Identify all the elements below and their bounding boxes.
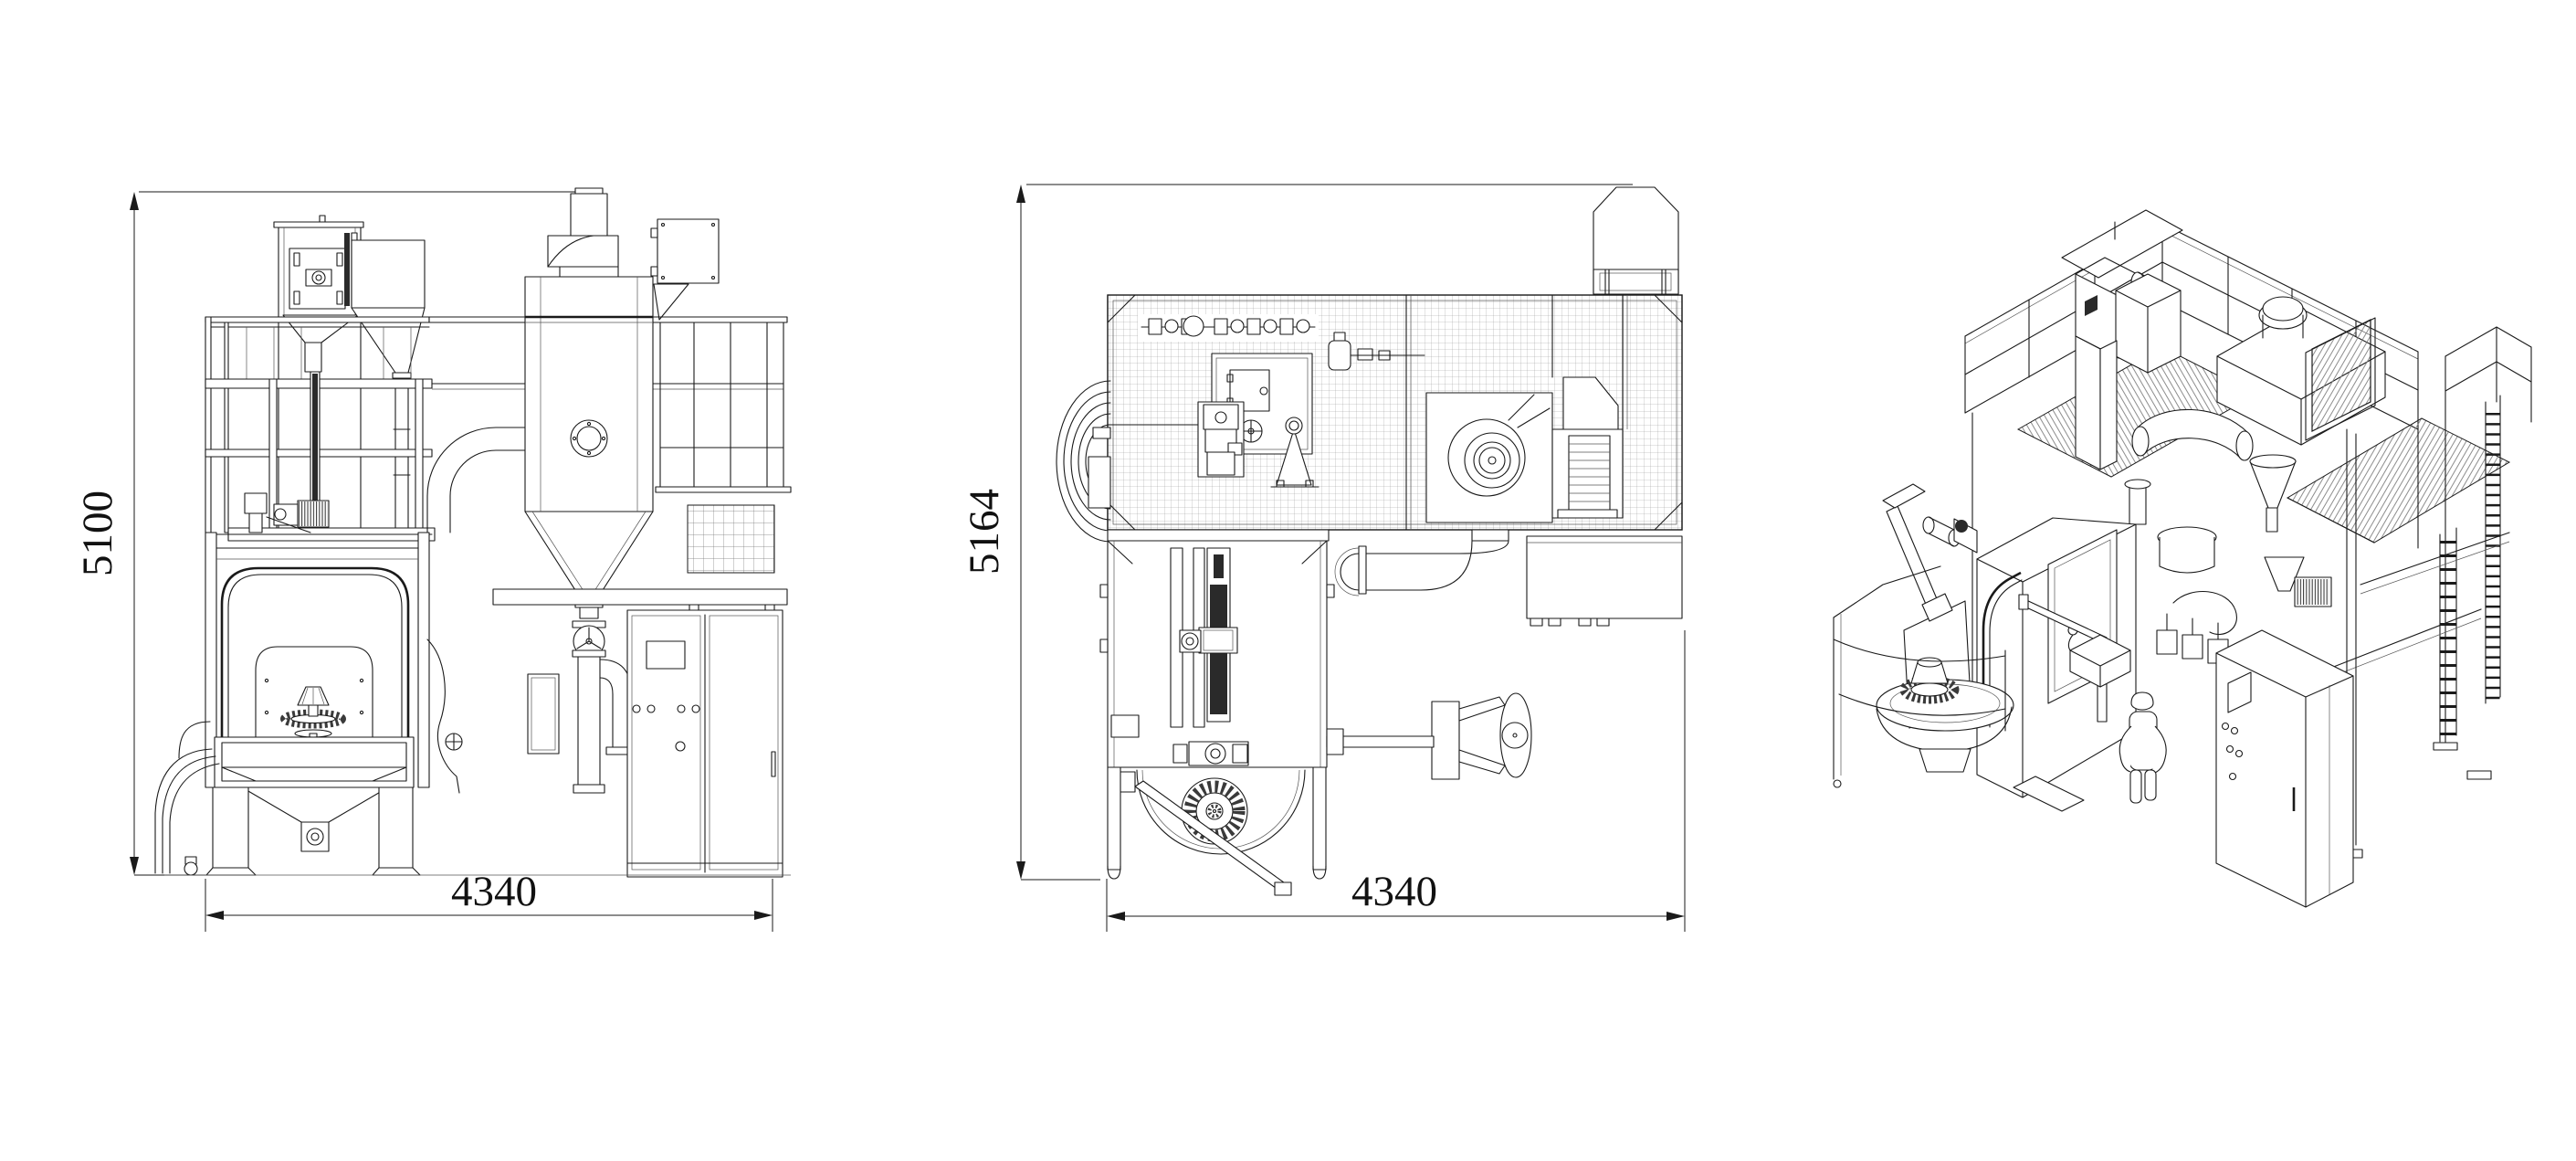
plan-hose-coil: [1057, 381, 1110, 542]
dim-plan-width: 4340: [1351, 868, 1437, 915]
iso-dust-collector: [2217, 297, 2385, 445]
drawing-sheet: 5100: [0, 0, 2576, 1161]
front-elevation-view: 5100: [74, 188, 791, 932]
isometric-view: [1834, 210, 2531, 907]
plan-elevator-head: [1198, 402, 1244, 477]
front-control-cabinet: [627, 610, 783, 877]
cad-canvas: 5100: [0, 0, 2576, 1161]
plan-electrical-box: [1527, 536, 1682, 626]
dim-front-height: 5100: [74, 491, 121, 576]
front-blast-cabinet: [155, 533, 462, 875]
plan-duct-elbow: [1335, 530, 1509, 596]
plan-blast-wheel: [1135, 770, 1305, 895]
plan-louver-panel: [1552, 377, 1623, 518]
front-gear-workpiece: [284, 687, 342, 737]
plan-valve-row: [1138, 314, 1319, 342]
dim-plan-height: 5164: [961, 489, 1008, 575]
front-suction-duct: [427, 427, 525, 533]
iso-deck-motor: [1923, 517, 1977, 553]
plan-operator-figure: [1327, 693, 1531, 779]
iso-control-cabinet: [2216, 630, 2353, 907]
plan-view: 5164: [961, 185, 1685, 932]
plan-exhaust-chimney: [1593, 187, 1678, 294]
dim-front-width: 4340: [451, 868, 537, 915]
plan-blower-fan: [1426, 393, 1552, 522]
